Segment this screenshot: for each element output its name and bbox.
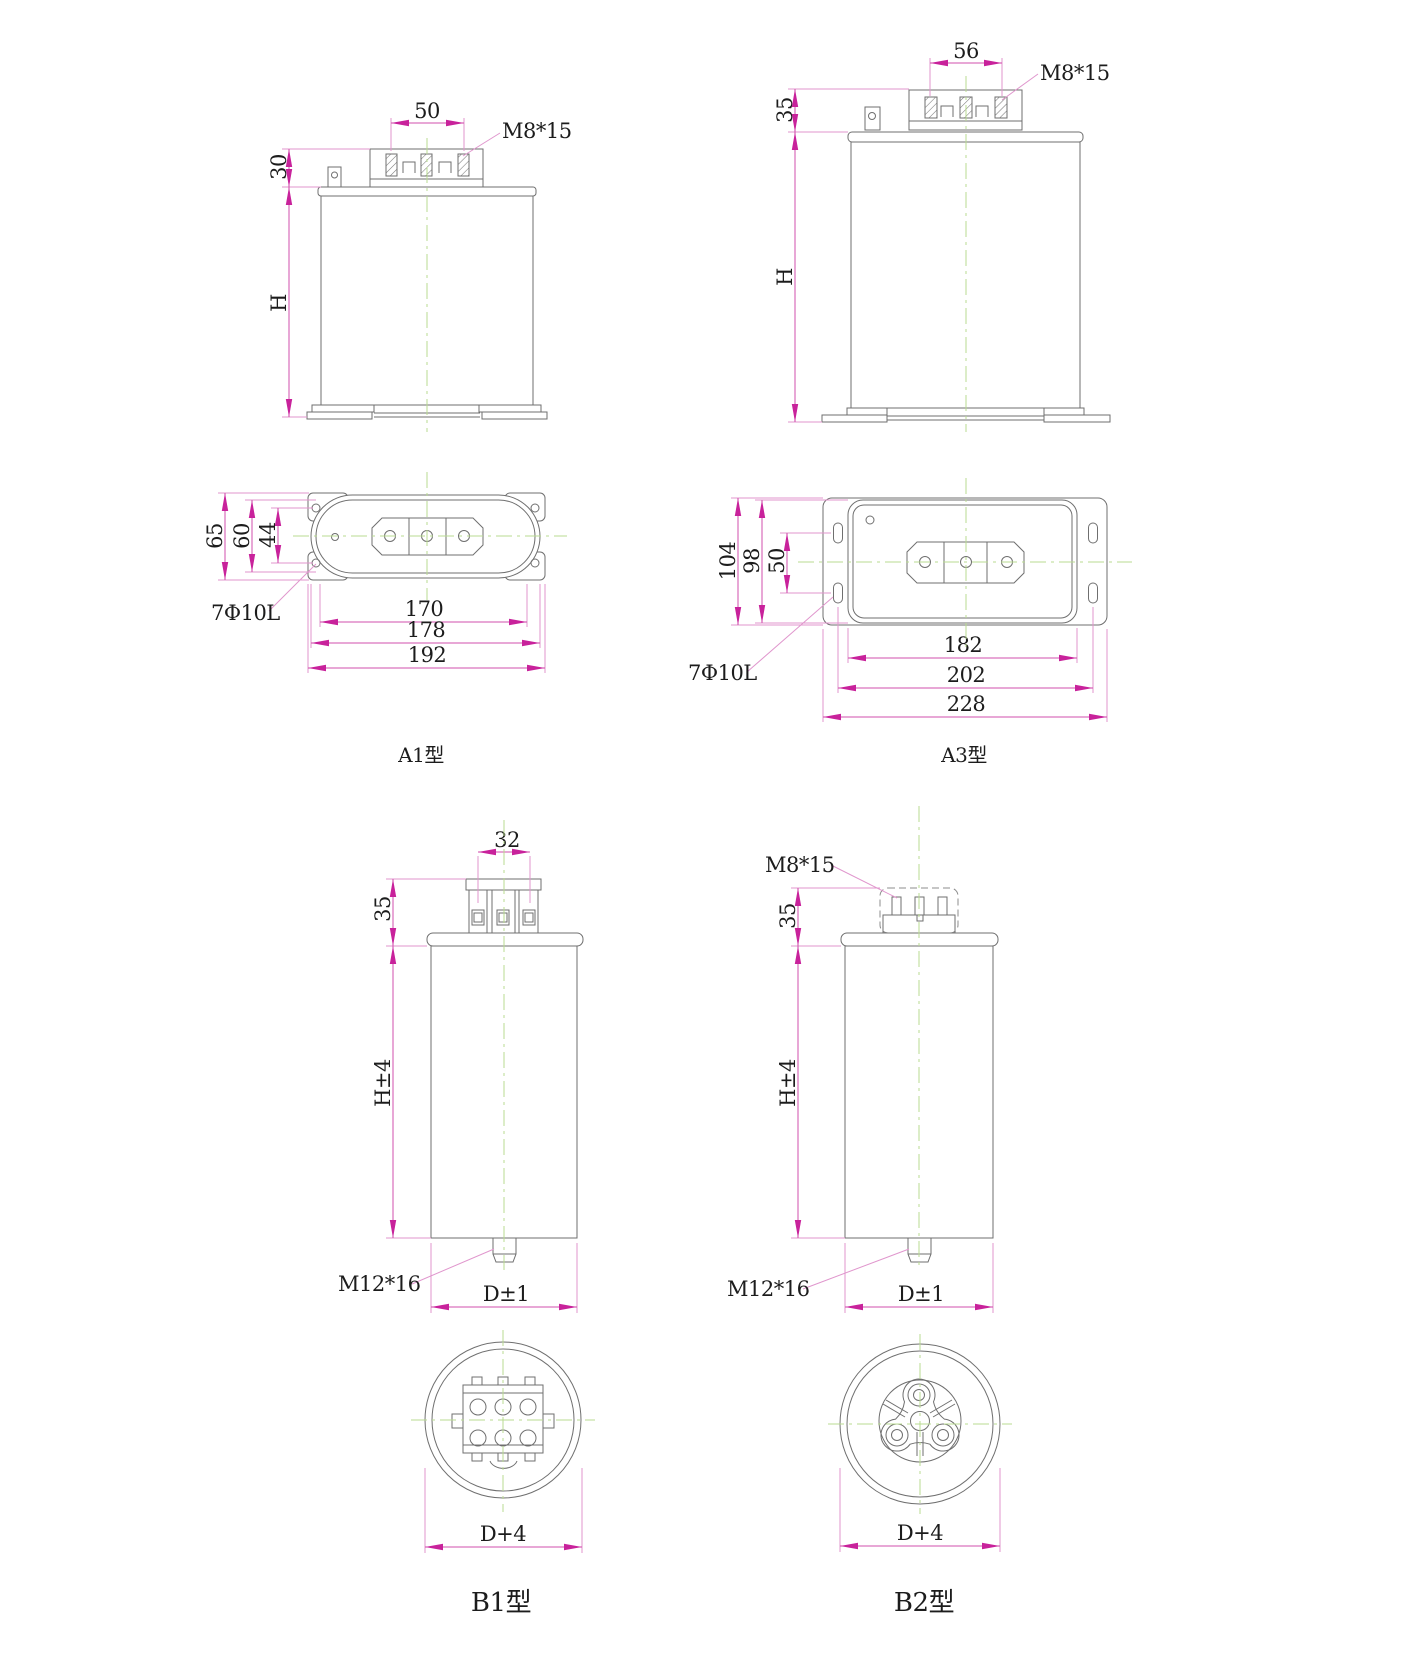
a3-dim-228: 228 <box>947 692 986 716</box>
a3-dim-H: H <box>773 268 797 286</box>
a1-holes-label: 7Φ10L <box>211 601 280 625</box>
a3-dim-202: 202 <box>947 663 986 687</box>
a3-side-tab-hole <box>869 113 876 120</box>
a1-view-label: A1型 <box>397 743 444 767</box>
b1-front-view: 32 35 H±4 M12*16 D±1 <box>338 820 583 1313</box>
b2-stud-label: M12*16 <box>727 1277 810 1301</box>
a3-dim-182: 182 <box>944 633 983 657</box>
a1-terminal-stud-left <box>386 154 397 176</box>
a3-holes-label: 7Φ10L <box>688 661 757 685</box>
a1-dim-30: 30 <box>267 154 291 180</box>
a1-side-tab <box>328 167 341 187</box>
b2-dim-35: 35 <box>776 903 800 929</box>
a3-side-tab <box>865 107 880 130</box>
b1-dim-35: 35 <box>371 896 395 922</box>
a3-dim-56: 56 <box>953 39 979 63</box>
a1-thread-label: M8*15 <box>502 119 572 143</box>
a3-thread-label: M8*15 <box>1040 61 1110 85</box>
a1-dim-192: 192 <box>408 643 447 667</box>
b2-front-view: M8*15 35 H±4 M12*16 D±1 <box>727 806 998 1313</box>
a1-footprint-view: 65 60 44 7Φ10L 170 178 192 A1型 <box>203 472 567 767</box>
b1-case-lip <box>427 933 583 946</box>
a1-dim-178: 178 <box>407 618 446 642</box>
b1-dim-H4: H±4 <box>371 1059 395 1107</box>
b1-view-label: B1型 <box>471 1588 531 1618</box>
a1-dim-50: 50 <box>414 99 440 123</box>
b1-top-view: D+4 B1型 <box>411 1330 595 1618</box>
a1-dim-44: 44 <box>256 522 280 548</box>
b2-thread-label: M8*15 <box>765 853 835 877</box>
a3-dim-98: 98 <box>740 548 764 574</box>
b1-stud-label: M12*16 <box>338 1272 421 1296</box>
a1-terminal-stud-right <box>458 154 469 176</box>
b2-dim-D1: D±1 <box>898 1282 944 1306</box>
b1-dim-32: 32 <box>494 828 520 852</box>
a3-footprint-view: 104 98 50 7Φ10L 182 202 228 A3型 <box>688 478 1132 767</box>
a3-front-view: 56 M8*15 35 H <box>773 39 1110 432</box>
a3-dim-104: 104 <box>716 542 740 581</box>
a1-dim-H: H <box>267 294 291 312</box>
b2-dim-H4: H±4 <box>776 1059 800 1107</box>
a3-terminal-stud-right <box>995 97 1007 118</box>
b1-dim-D4: D+4 <box>480 1522 526 1546</box>
a3-terminal-stud-left <box>925 97 937 118</box>
a1-front-view: 50 M8*15 30 H <box>267 99 572 432</box>
b2-dim-D4: D+4 <box>897 1521 943 1545</box>
a1-dim-60: 60 <box>230 523 254 549</box>
a1-dim-65: 65 <box>203 523 227 549</box>
a3-dim-35: 35 <box>773 97 797 123</box>
capacitor-outline-drawing: 50 M8*15 30 H <box>0 0 1405 1659</box>
b1-dim-D1: D±1 <box>483 1282 529 1306</box>
drawing-canvas: 50 M8*15 30 H <box>0 0 1405 1659</box>
b2-top-view: D+4 B2型 <box>828 1334 1012 1618</box>
a1-side-tab-hole <box>332 172 338 178</box>
b2-view-label: B2型 <box>894 1588 954 1618</box>
a3-view-label: A3型 <box>940 743 987 767</box>
a3-dim-50: 50 <box>765 548 789 574</box>
